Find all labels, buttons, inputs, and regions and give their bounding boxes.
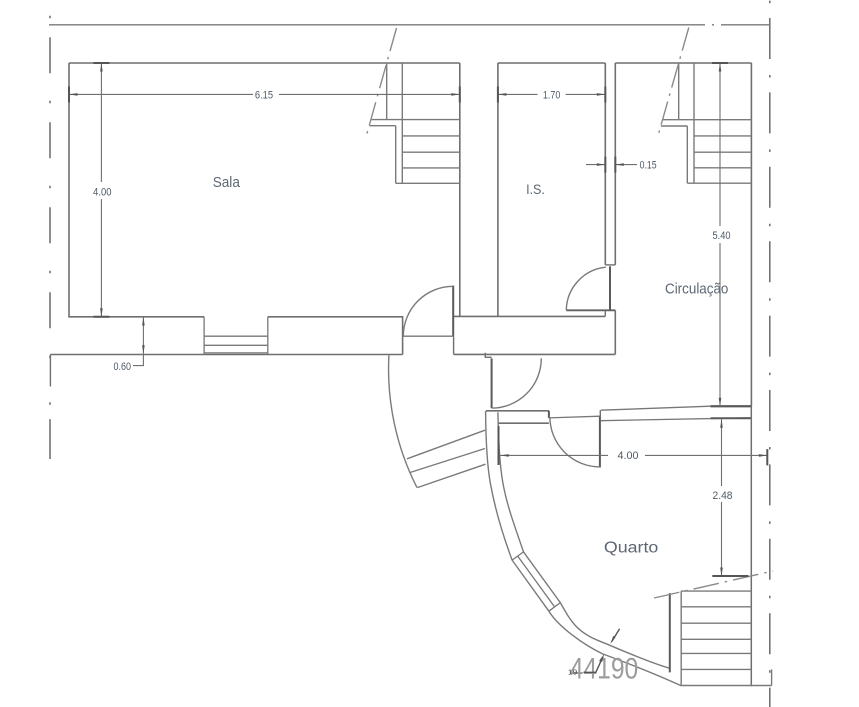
svg-text:4.00: 4.00 xyxy=(618,450,639,462)
svg-text:44190: 44190 xyxy=(570,653,639,686)
svg-text:I.S.: I.S. xyxy=(526,181,545,197)
svg-text:5.40: 5.40 xyxy=(713,230,731,242)
svg-text:6.15: 6.15 xyxy=(255,89,273,101)
svg-text:19: 19 xyxy=(568,670,578,677)
svg-text:1.70: 1.70 xyxy=(543,89,560,101)
svg-text:4.00: 4.00 xyxy=(93,187,112,199)
svg-text:0.60: 0.60 xyxy=(114,361,132,373)
svg-text:Circulação: Circulação xyxy=(665,281,728,297)
svg-text:0.15: 0.15 xyxy=(640,159,657,171)
svg-text:2.48: 2.48 xyxy=(713,490,733,502)
svg-text:Quarto: Quarto xyxy=(604,539,658,556)
svg-text:Sala: Sala xyxy=(213,175,240,191)
